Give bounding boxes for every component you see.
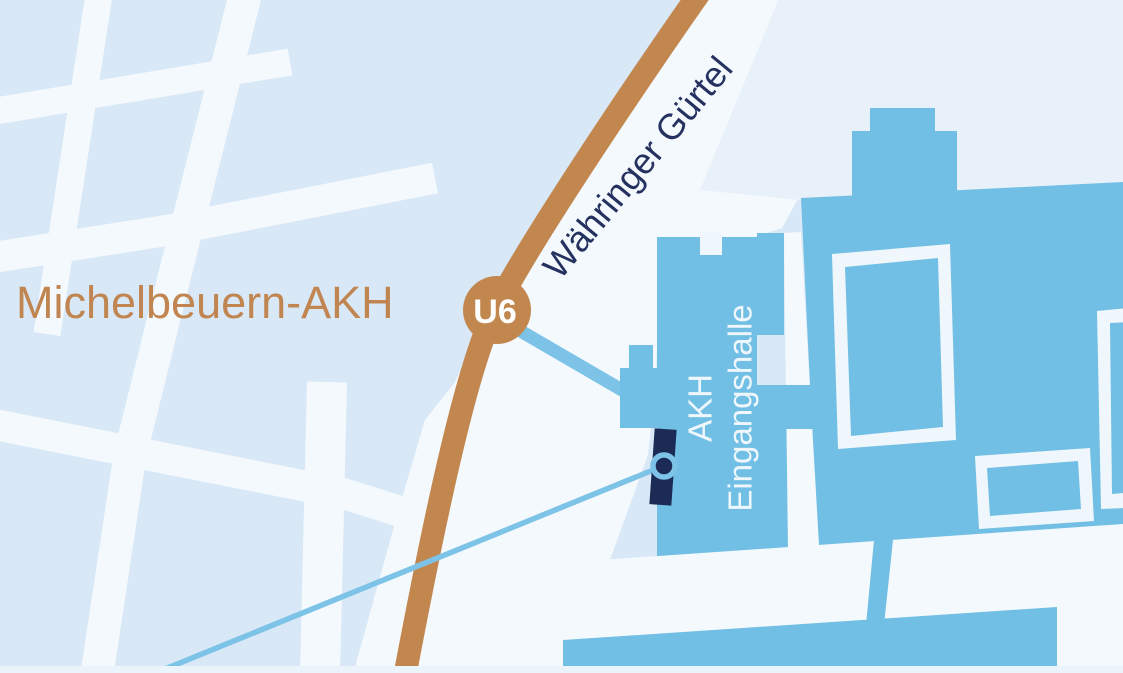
street-vertical-3 xyxy=(320,382,327,673)
courtyard-1-inner xyxy=(845,258,943,436)
building-label-line1: AKH xyxy=(682,374,719,442)
transit-map: U6 Michelbeuern-AKH Währinger Gürtel AKH… xyxy=(0,0,1123,673)
bottom-band-street xyxy=(0,666,1123,673)
building-bridge xyxy=(757,385,819,429)
station-name-label: Michelbeuern-AKH xyxy=(16,277,394,328)
u6-station-badge[interactable]: U6 xyxy=(463,276,531,344)
entrance-hall-roof-notch xyxy=(700,232,722,255)
u6-badge-label: U6 xyxy=(473,293,516,331)
building-label-line2: Eingangshalle xyxy=(722,304,759,511)
courtyard-2-inner xyxy=(987,461,1081,516)
courtyard-3-inner xyxy=(1110,321,1123,494)
